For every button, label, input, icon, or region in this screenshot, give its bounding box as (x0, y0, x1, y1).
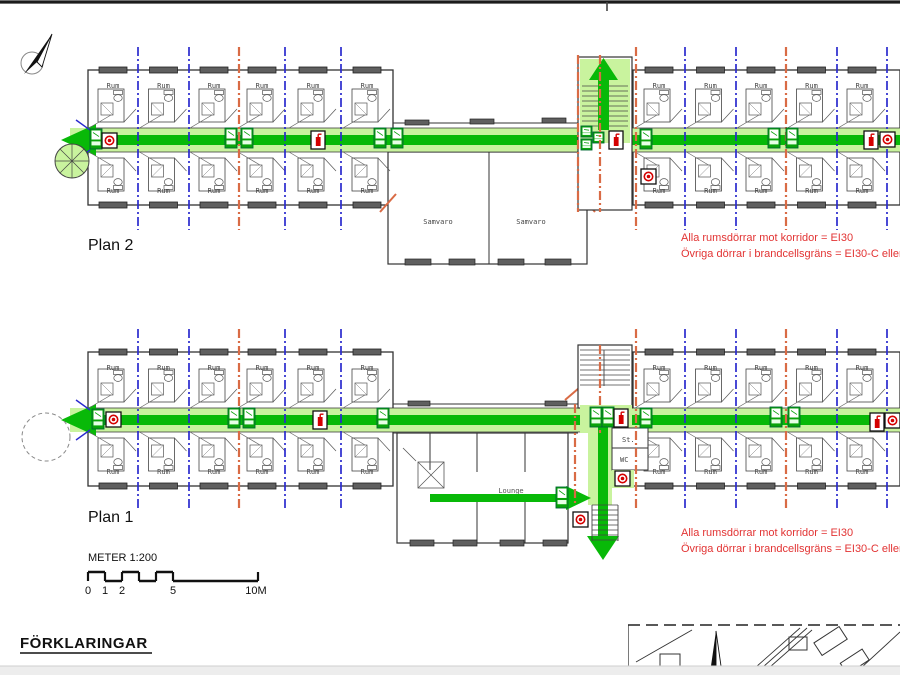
window (299, 67, 327, 73)
fire-note-line2: Övriga dörrar i brandcellsgräns = EI30-C… (681, 248, 900, 260)
room-label: Rum (256, 187, 269, 195)
scale-label: METER 1:200 (88, 552, 157, 564)
exit-sign-pictogram (642, 141, 651, 145)
window (150, 483, 178, 489)
room-label: Rum (157, 82, 170, 90)
exit-sign-pictogram (92, 141, 101, 145)
window (99, 349, 127, 355)
room-label: Rum (307, 82, 320, 90)
room-label: Rum (704, 82, 717, 90)
pod-wall (644, 369, 670, 402)
window (405, 259, 431, 265)
window (248, 349, 276, 355)
window (645, 483, 673, 489)
pod-wall (746, 369, 772, 402)
room-label: Rum (805, 468, 818, 476)
window (848, 67, 876, 73)
site-road (756, 628, 800, 667)
window (848, 483, 876, 489)
pod-wall (644, 89, 670, 122)
window (410, 540, 434, 546)
exit-sign-pictogram (393, 140, 402, 144)
window (747, 202, 775, 208)
window (248, 202, 276, 208)
room-label: Rum (208, 468, 221, 476)
extinguisher-body (318, 417, 323, 426)
room-label: Rum (157, 468, 170, 476)
room-label: Rum (856, 82, 869, 90)
extinguisher-body (875, 419, 880, 428)
window (299, 483, 327, 489)
scale-tick-label: 2 (119, 585, 125, 597)
room-label: Rum (755, 187, 768, 195)
room-label: Rum (755, 364, 768, 372)
room-label: Rum (208, 364, 221, 372)
plan-title: Plan 1 (88, 509, 133, 526)
site-road (636, 630, 692, 662)
exit-arrow-down-shaft (598, 426, 608, 538)
exit-sign-pictogram (245, 420, 254, 424)
alarm-dot (891, 419, 895, 423)
window (645, 202, 673, 208)
fire-alarm-button-icon (641, 169, 656, 184)
exit-sign-pictogram (230, 420, 239, 424)
extinguisher-body (614, 137, 619, 146)
exit-sign-pictogram (583, 133, 591, 135)
exit-sign-icon (786, 128, 798, 148)
window (697, 202, 725, 208)
window (99, 483, 127, 489)
window (798, 349, 826, 355)
room-label: Rum (307, 187, 320, 195)
room-label: Rum (653, 364, 666, 372)
alarm-dot (579, 518, 583, 522)
room-label: Rum (361, 187, 374, 195)
window (200, 67, 228, 73)
compass-needle-light (37, 34, 52, 67)
exit-sign-icon (90, 129, 102, 149)
fire-alarm-button-icon (885, 413, 900, 428)
pod-wall (696, 438, 722, 471)
evacuation-plan-drawing: SamvaroSamvaroRumRumRumRumRumRumRumRumRu… (0, 0, 900, 675)
scale-tick-label: 0 (85, 585, 91, 597)
exit-sign-pictogram (770, 140, 779, 144)
room-label: Rum (157, 187, 170, 195)
fire-extinguisher-icon (614, 409, 628, 427)
exit-sign-icon (602, 407, 614, 427)
north-arrow-icon (21, 34, 52, 74)
room-label: Rum (157, 364, 170, 372)
pod-wall (746, 89, 772, 122)
window (248, 67, 276, 73)
pod-wall (797, 369, 823, 402)
pod-wall (247, 89, 273, 122)
drawing-sheet: SamvaroSamvaroRumRumRumRumRumRumRumRumRu… (0, 0, 900, 675)
site-road (862, 632, 900, 667)
room-label: Rum (755, 468, 768, 476)
exit-sign-icon (581, 139, 592, 150)
fire-alarm-button-icon (573, 512, 588, 527)
exit-sign-icon (640, 408, 652, 428)
extinguisher-body (619, 415, 624, 424)
window (299, 349, 327, 355)
exit-sign-pictogram (642, 420, 651, 424)
window (353, 349, 381, 355)
room-label: Rum (256, 468, 269, 476)
alarm-dot (886, 138, 890, 142)
exit-sign-pictogram (788, 140, 797, 144)
site-road (763, 628, 807, 667)
pod-wall (149, 369, 175, 402)
stair-tower (578, 345, 632, 408)
exit-arrow-east (566, 486, 591, 510)
room-label: Rum (208, 187, 221, 195)
window (747, 349, 775, 355)
exit-sign-icon (590, 407, 602, 427)
scale-tick-label: 10M (245, 585, 266, 597)
pod-wall (696, 369, 722, 402)
room-label: Rum (307, 468, 320, 476)
room-label: Rum (755, 82, 768, 90)
pod-wall (797, 438, 823, 471)
escape-route-lounge (430, 494, 568, 502)
room-label: Rum (256, 364, 269, 372)
window (99, 202, 127, 208)
exit-sign-icon (391, 128, 403, 148)
window (150, 202, 178, 208)
spiral-stair-icon (55, 144, 89, 178)
room-label: Rum (361, 364, 374, 372)
room-label: Rum (805, 364, 818, 372)
pod-wall (199, 438, 225, 471)
site-building (814, 627, 847, 656)
pod-wall (847, 438, 873, 471)
window (248, 483, 276, 489)
window (543, 540, 567, 546)
room-label-st: St. (622, 436, 635, 444)
room-label: Rum (856, 468, 869, 476)
window (848, 202, 876, 208)
room-label: Rum (307, 364, 320, 372)
window (498, 259, 524, 265)
compass-needle-dark (24, 34, 52, 74)
site-north-arrow-icon (716, 631, 721, 666)
exit-sign-icon (581, 126, 592, 137)
wc-room (612, 448, 648, 470)
window (200, 349, 228, 355)
exit-sign-icon (556, 487, 568, 508)
window (150, 67, 178, 73)
room-label: Rum (107, 82, 120, 90)
room-label: Rum (704, 468, 717, 476)
window (470, 119, 494, 124)
room-label-samvaro: Samvaro (423, 218, 453, 226)
extinguisher-body (869, 137, 874, 146)
plan1-floorplan: LoungeRumRumRumRumRumRumRumRumRumRumRumR… (22, 329, 900, 560)
exit-sign-icon (377, 408, 389, 428)
room-label: Rum (856, 187, 869, 195)
room-label: Rum (361, 82, 374, 90)
exit-sign-pictogram (243, 140, 252, 144)
window (697, 67, 725, 73)
window (353, 67, 381, 73)
window (645, 349, 673, 355)
alarm-dot (621, 477, 625, 481)
exit-sign-icon (640, 129, 652, 149)
fire-compartment-corner-mark (565, 388, 579, 400)
fire-alarm-button-icon (102, 133, 117, 148)
window (353, 483, 381, 489)
fire-note-line1: Alla rumsdörrar mot korridor = EI30 (681, 232, 853, 244)
room-label: Rum (653, 468, 666, 476)
room-label: Rum (107, 364, 120, 372)
site-building-rect (814, 627, 847, 656)
room-label-wc: WC (620, 456, 628, 464)
site-building (660, 654, 680, 666)
window (150, 349, 178, 355)
exit-sign-icon (593, 132, 604, 143)
window (545, 401, 567, 406)
pod-wall (797, 89, 823, 122)
exit-sign-icon (243, 408, 255, 428)
exit-sign-pictogram (379, 420, 388, 424)
scale-bar: METER 1:200012510M (85, 552, 267, 597)
window (405, 120, 429, 125)
window (848, 349, 876, 355)
window (200, 483, 228, 489)
exit-sign-pictogram (558, 500, 567, 504)
plan-title: Plan 2 (88, 237, 133, 254)
exit-sign-icon (788, 407, 800, 427)
pod-wall (149, 89, 175, 122)
pod-wall (352, 89, 378, 122)
window (542, 118, 566, 123)
fire-extinguisher-icon (311, 131, 325, 149)
alarm-dot (647, 175, 651, 179)
fire-alarm-button-icon (615, 471, 630, 486)
plan2-floorplan: SamvaroSamvaroRumRumRumRumRumRumRumRumRu… (55, 47, 900, 265)
window (453, 540, 477, 546)
exit-sign-pictogram (604, 419, 613, 423)
window (299, 202, 327, 208)
exit-sign-icon (768, 128, 780, 148)
exit-sign-pictogram (790, 419, 799, 423)
alarm-dot (112, 418, 116, 422)
room-label: Rum (361, 468, 374, 476)
scale-tick-label: 1 (102, 585, 108, 597)
exit-sign-pictogram (227, 140, 236, 144)
scale-tick-label: 5 (170, 585, 176, 597)
room-label: Rum (704, 364, 717, 372)
room-label: Rum (856, 364, 869, 372)
site-north-arrow-icon (711, 631, 716, 666)
extinguisher-body (316, 137, 321, 146)
exit-sign-pictogram (595, 139, 603, 141)
pod-wall (199, 369, 225, 402)
pod-wall (247, 369, 273, 402)
window (545, 259, 571, 265)
pod-wall (98, 89, 124, 122)
exit-sign-pictogram (94, 421, 103, 425)
room-label: Rum (805, 187, 818, 195)
samvaro-building (388, 152, 587, 264)
exit-sign-icon (770, 407, 782, 427)
room-label: Rum (704, 187, 717, 195)
fire-extinguisher-icon (313, 411, 327, 429)
exit-sign-icon (241, 128, 253, 148)
window (747, 67, 775, 73)
exit-sign-pictogram (772, 419, 781, 423)
fire-extinguisher-icon (864, 131, 878, 149)
exit-sign-icon (225, 128, 237, 148)
exit-sign-pictogram (592, 419, 601, 423)
room-label: Rum (805, 82, 818, 90)
room-label: Rum (653, 82, 666, 90)
window (449, 259, 475, 265)
pod-wall (696, 89, 722, 122)
exit-sign-icon (228, 408, 240, 428)
fire-note-line1: Alla rumsdörrar mot korridor = EI30 (681, 527, 853, 539)
pod-wall (298, 438, 324, 471)
window (645, 67, 673, 73)
room-label: Rum (256, 82, 269, 90)
exit-sign-icon (92, 409, 104, 429)
window (798, 67, 826, 73)
legend-heading: FÖRKLARINGAR (20, 635, 148, 652)
exit-sign-icon (374, 128, 386, 148)
fire-extinguisher-icon (609, 131, 623, 149)
pod-wall (149, 438, 175, 471)
exit-sign-pictogram (376, 140, 385, 144)
window (200, 202, 228, 208)
window (697, 483, 725, 489)
room-label-lounge: Lounge (498, 487, 523, 495)
pod-wall (298, 89, 324, 122)
fire-note-line2: Övriga dörrar i brandcellsgräns = EI30-C… (681, 543, 900, 555)
window (798, 483, 826, 489)
pod-wall (847, 89, 873, 122)
room-label: Rum (107, 468, 120, 476)
pod-wall (352, 438, 378, 471)
alarm-dot (108, 139, 112, 143)
pod-wall (746, 438, 772, 471)
window (99, 67, 127, 73)
window (353, 202, 381, 208)
pod-wall (352, 369, 378, 402)
window (798, 202, 826, 208)
bottom-scroll-strip (0, 666, 900, 675)
pod-wall (298, 369, 324, 402)
fire-extinguisher-icon (870, 413, 884, 431)
fire-alarm-button-icon (106, 412, 121, 427)
room-label: Rum (653, 187, 666, 195)
exit-sign-pictogram (583, 146, 591, 148)
pod-wall (98, 438, 124, 471)
pod-wall (247, 438, 273, 471)
pod-wall (847, 369, 873, 402)
window (747, 483, 775, 489)
room-label: Rum (208, 82, 221, 90)
window (697, 349, 725, 355)
legend-section: FÖRKLARINGAR (20, 635, 152, 653)
window (500, 540, 524, 546)
pod-wall (199, 89, 225, 122)
room-label-samvaro: Samvaro (516, 218, 546, 226)
window (408, 401, 430, 406)
fire-alarm-button-icon (880, 132, 895, 147)
room-label: Rum (107, 187, 120, 195)
pod-wall (98, 369, 124, 402)
sheet-frame (0, 2, 900, 11)
